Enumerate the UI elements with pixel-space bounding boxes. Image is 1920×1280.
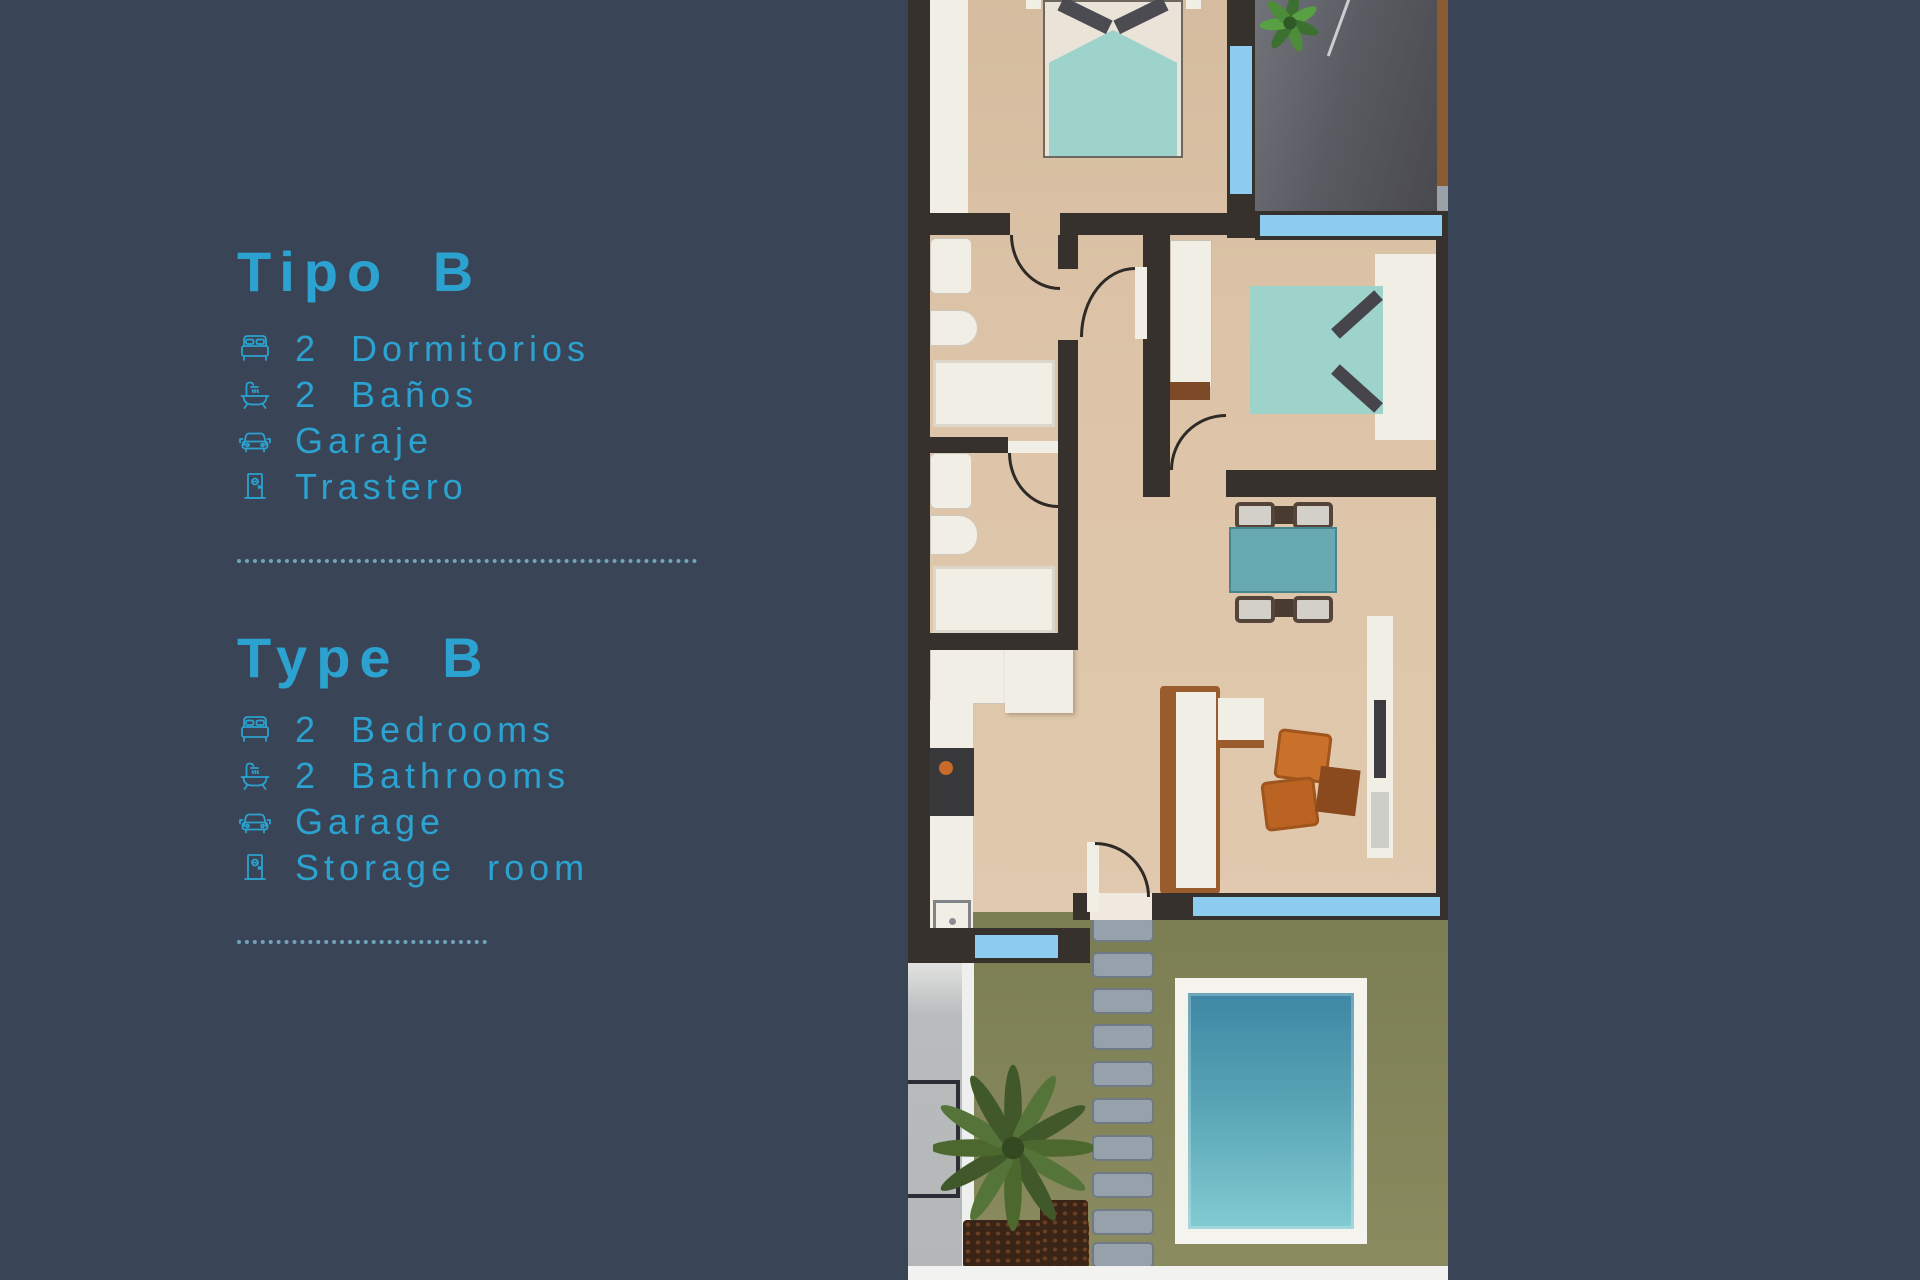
feature-label: Trastero <box>295 466 468 508</box>
stepping-stone <box>1092 988 1154 1014</box>
garage-plant <box>1250 0 1330 56</box>
door-icon <box>237 469 273 505</box>
stepping-stone <box>1092 1172 1154 1198</box>
feature-bathrooms-en: 2 Bathrooms <box>237 753 697 799</box>
wall <box>908 0 930 960</box>
feature-label: 2 Dormitorios <box>295 328 590 370</box>
dotted-divider <box>237 940 487 944</box>
info-panel: Tipo B 2 Dormitorios 2 Baños <box>237 242 697 944</box>
drain <box>949 918 956 925</box>
swimming-pool <box>1188 993 1354 1229</box>
stepping-stone <box>1092 1024 1154 1050</box>
wall <box>916 633 1078 650</box>
heading-tipo-b: Tipo B <box>237 242 697 302</box>
window <box>1260 215 1442 236</box>
palm-tree <box>933 1062 1093 1234</box>
nightstand <box>1026 0 1041 9</box>
stepping-stone <box>1092 1209 1154 1235</box>
stepping-stone <box>1092 1061 1154 1087</box>
toilet <box>930 238 972 294</box>
sofa-chaise <box>1218 698 1264 740</box>
bedroom2-wardrobe-base <box>1170 382 1210 400</box>
door-leaf <box>1135 267 1147 339</box>
toilet <box>930 453 972 509</box>
wall <box>930 213 1010 235</box>
armchair <box>1260 776 1320 832</box>
kitchen-island <box>1005 645 1073 713</box>
stepping-stone <box>1092 952 1154 978</box>
tv <box>1374 700 1386 778</box>
floor-plan-image <box>908 0 1448 1280</box>
patio-door-gap <box>1090 893 1152 920</box>
brochure-page: Tipo B 2 Dormitorios 2 Baños <box>0 0 1920 1280</box>
bathtub <box>933 360 1055 427</box>
dining-chair <box>1293 502 1333 529</box>
door-leaf <box>1008 441 1058 453</box>
stepping-stone <box>1092 1242 1154 1268</box>
bathtub-icon <box>237 377 273 413</box>
coffee-table <box>1315 766 1360 817</box>
wall <box>1143 220 1170 497</box>
bathtub-icon <box>237 758 273 794</box>
section-english: Type B 2 Bedrooms 2 Bathrooms <box>237 628 697 944</box>
sofa-cushions <box>1176 692 1216 888</box>
feature-label: Garage <box>295 801 445 843</box>
dining-chair <box>1293 596 1333 623</box>
stepping-stone <box>1092 1098 1154 1124</box>
window <box>1230 46 1252 194</box>
car-icon <box>237 423 273 459</box>
garage-door <box>1437 0 1448 186</box>
heading-type-b: Type B <box>237 628 697 688</box>
feature-bedrooms-en: 2 Bedrooms <box>237 707 697 753</box>
feature-label: Storage room <box>295 847 589 889</box>
wall <box>1226 470 1448 497</box>
feature-garage-en: Garage <box>237 799 697 845</box>
feature-bedrooms-es: 2 Dormitorios <box>237 326 697 372</box>
chair-frame <box>1275 506 1293 524</box>
dining-chair <box>1235 502 1275 529</box>
kitchen-counter <box>930 648 1012 704</box>
car-icon <box>237 804 273 840</box>
chair-frame <box>1275 599 1293 617</box>
nightstand <box>1186 0 1201 9</box>
washbasin <box>930 310 978 346</box>
dining-table <box>1229 527 1337 593</box>
feature-bathrooms-es: 2 Baños <box>237 372 697 418</box>
window <box>975 935 1058 958</box>
section-spanish: Tipo B 2 Dormitorios 2 Baños <box>237 242 697 563</box>
feature-label: Garaje <box>295 420 433 462</box>
feature-storage-en: Storage room <box>237 845 697 891</box>
bed-icon <box>237 331 273 367</box>
wall <box>1058 340 1078 650</box>
bed-icon <box>237 712 273 748</box>
plan-bottom-margin <box>908 1266 1448 1280</box>
cooktop <box>928 748 974 816</box>
washbasin <box>930 515 978 555</box>
feature-list-en: 2 Bedrooms 2 Bathrooms Garage <box>237 707 697 891</box>
feature-storage-es: Trastero <box>237 464 697 510</box>
wall <box>930 437 1008 453</box>
garage-door-sill <box>1437 186 1448 213</box>
bathtub <box>933 566 1055 633</box>
burner <box>939 761 953 775</box>
feature-label: 2 Baños <box>295 374 478 416</box>
bedroom2-headboard <box>1375 254 1436 440</box>
door-icon <box>237 850 273 886</box>
wall <box>1436 236 1448 920</box>
tv-shelf <box>1371 792 1389 848</box>
feature-label: 2 Bedrooms <box>295 709 555 751</box>
wall <box>1058 235 1078 269</box>
stepping-stone <box>1092 1135 1154 1161</box>
feature-garage-es: Garaje <box>237 418 697 464</box>
sofa-chaise-frame <box>1218 740 1264 748</box>
dining-chair <box>1235 596 1275 623</box>
bedroom2-wardrobe <box>1170 240 1212 388</box>
feature-label: 2 Bathrooms <box>295 755 570 797</box>
window <box>1193 897 1440 916</box>
feature-list-es: 2 Dormitorios 2 Baños Garaje <box>237 326 697 510</box>
master-wardrobe <box>930 0 968 213</box>
dotted-divider <box>237 559 697 563</box>
